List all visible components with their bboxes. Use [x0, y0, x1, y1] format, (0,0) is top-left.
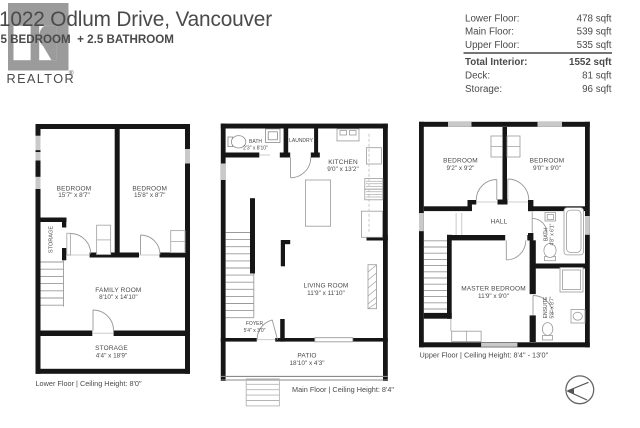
svg-text:478 sqft: 478 sqft [577, 13, 612, 24]
svg-text:11'9" x 9'0": 11'9" x 9'0" [478, 293, 509, 300]
svg-text:BATH: BATH [249, 139, 262, 145]
svg-text:STORAGE: STORAGE [95, 345, 128, 352]
svg-text:LAUNDRY: LAUNDRY [289, 138, 313, 144]
svg-text:ENSUITE: ENSUITE [543, 296, 549, 318]
svg-text:Upper Floor:: Upper Floor: [465, 40, 519, 51]
svg-text:5 BEDROOM + 2.5 BATHROOM: 5 BEDROOM + 2.5 BATHROOM [1, 33, 174, 46]
svg-text:5'8" x 8'7": 5'8" x 8'7" [550, 296, 556, 318]
svg-text:535 sqft: 535 sqft [577, 40, 612, 51]
svg-text:11'9" x 11'10": 11'9" x 11'10" [307, 290, 345, 297]
svg-text:15'8" x 8'7": 15'8" x 8'7" [134, 192, 166, 199]
svg-text:®: ® [69, 69, 74, 77]
svg-text:81 sqft: 81 sqft [582, 71, 612, 82]
svg-text:STORAGE: STORAGE [48, 226, 54, 254]
svg-text:15'7" x 8'7": 15'7" x 8'7" [58, 192, 90, 199]
svg-text:1022 Odlum Drive, Vancouver: 1022 Odlum Drive, Vancouver [0, 8, 272, 31]
svg-text:9'2" x 9'2": 9'2" x 9'2" [447, 165, 475, 172]
svg-text:4'8" x 6'1": 4'8" x 6'1" [550, 223, 556, 245]
svg-text:Deck:: Deck: [465, 71, 490, 82]
svg-text:9'0" x 9'0": 9'0" x 9'0" [533, 165, 561, 172]
svg-text:8'10" x 14'10": 8'10" x 14'10" [99, 294, 138, 301]
svg-text:KITCHEN: KITCHEN [328, 159, 358, 166]
svg-text:539 sqft: 539 sqft [577, 27, 612, 38]
svg-text:MASTER BEDROOM: MASTER BEDROOM [461, 285, 526, 292]
svg-text:Lower Floor | Ceiling Height:: Lower Floor | Ceiling Height: 8'0" [36, 379, 142, 388]
svg-text:Upper Floor | Ceiling Height:: Upper Floor | Ceiling Height: 8'4" - 13'… [420, 351, 549, 360]
svg-text:LIVING ROOM: LIVING ROOM [304, 283, 349, 290]
svg-text:FOYER: FOYER [246, 321, 264, 327]
svg-text:HALL: HALL [491, 219, 508, 226]
svg-text:Storage:: Storage: [465, 84, 502, 95]
svg-text:BEDROOM: BEDROOM [530, 158, 565, 165]
svg-text:Main Floor:: Main Floor: [465, 27, 514, 38]
svg-text:4'4" x 18'9": 4'4" x 18'9" [96, 352, 128, 359]
svg-text:18'10" x 4'3": 18'10" x 4'3" [289, 360, 324, 367]
svg-text:FAMILY ROOM: FAMILY ROOM [95, 287, 141, 294]
svg-text:Lower Floor:: Lower Floor: [465, 13, 519, 24]
svg-text:1552 sqft: 1552 sqft [569, 57, 612, 68]
svg-text:9'0" x 13'2": 9'0" x 13'2" [327, 166, 359, 173]
svg-text:5'4" x 3'0": 5'4" x 3'0" [244, 328, 266, 334]
svg-text:BEDROOM: BEDROOM [443, 158, 478, 165]
svg-text:2'3" x 8'10": 2'3" x 8'10" [243, 146, 268, 152]
svg-text:REALTOR: REALTOR [7, 72, 76, 86]
svg-text:PATIO: PATIO [297, 353, 316, 360]
svg-text:96 sqft: 96 sqft [582, 84, 612, 95]
svg-text:Total Interior:: Total Interior: [465, 57, 527, 68]
svg-text:Main Floor | Ceiling Height: 8: Main Floor | Ceiling Height: 8'4" [292, 385, 394, 394]
